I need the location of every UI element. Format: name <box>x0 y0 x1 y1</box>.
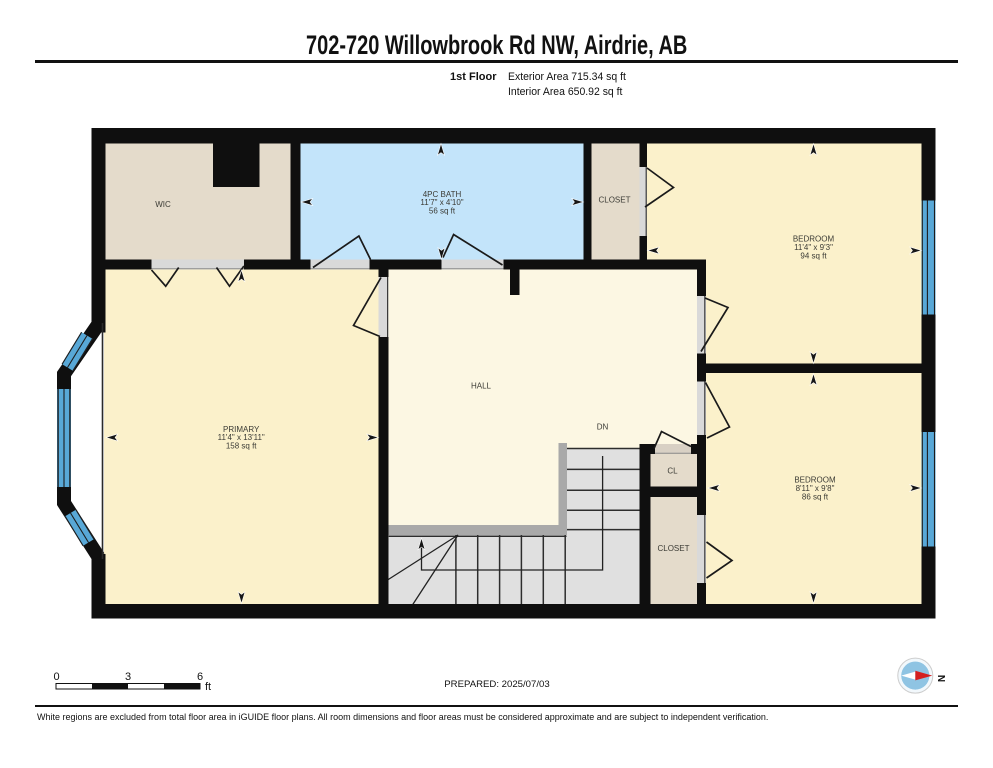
svg-text:DN: DN <box>597 423 609 432</box>
svg-text:CL: CL <box>667 466 678 475</box>
svg-text:94 sq ft: 94 sq ft <box>800 252 827 261</box>
svg-text:HALL: HALL <box>471 382 492 391</box>
svg-text:3: 3 <box>125 671 131 683</box>
svg-text:6: 6 <box>197 671 203 683</box>
svg-text:N: N <box>935 675 946 682</box>
svg-text:PREPARED: 2025/07/03: PREPARED: 2025/07/03 <box>444 679 549 690</box>
svg-text:CLOSET: CLOSET <box>598 196 630 205</box>
svg-text:CLOSET: CLOSET <box>657 544 689 553</box>
svg-text:56 sq ft: 56 sq ft <box>429 207 456 216</box>
svg-text:ft: ft <box>205 681 211 693</box>
svg-text:86 sq ft: 86 sq ft <box>802 493 829 502</box>
svg-text:158 sq ft: 158 sq ft <box>226 442 257 451</box>
svg-text:0: 0 <box>53 671 59 683</box>
svg-text:WIC: WIC <box>155 200 171 209</box>
